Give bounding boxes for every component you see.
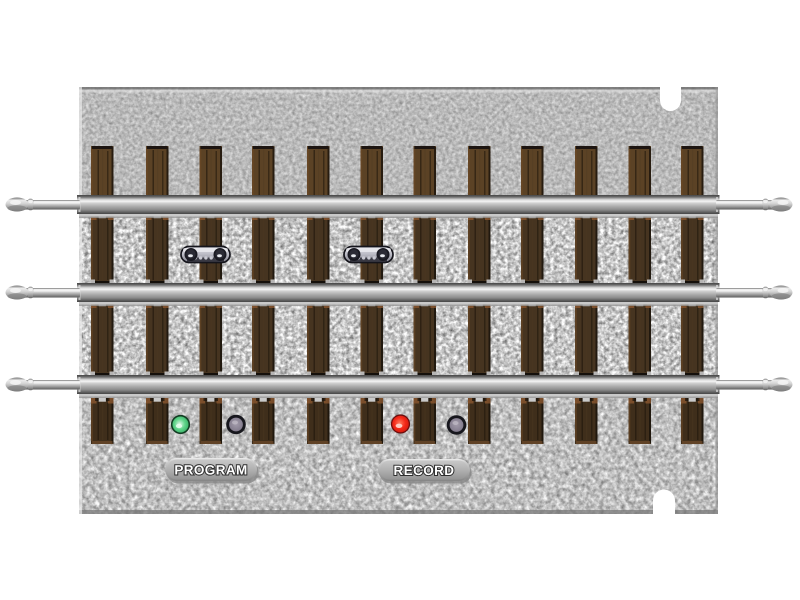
svg-text:PROGRAM: PROGRAM xyxy=(174,463,247,478)
svg-text:RECORD: RECORD xyxy=(394,463,455,478)
